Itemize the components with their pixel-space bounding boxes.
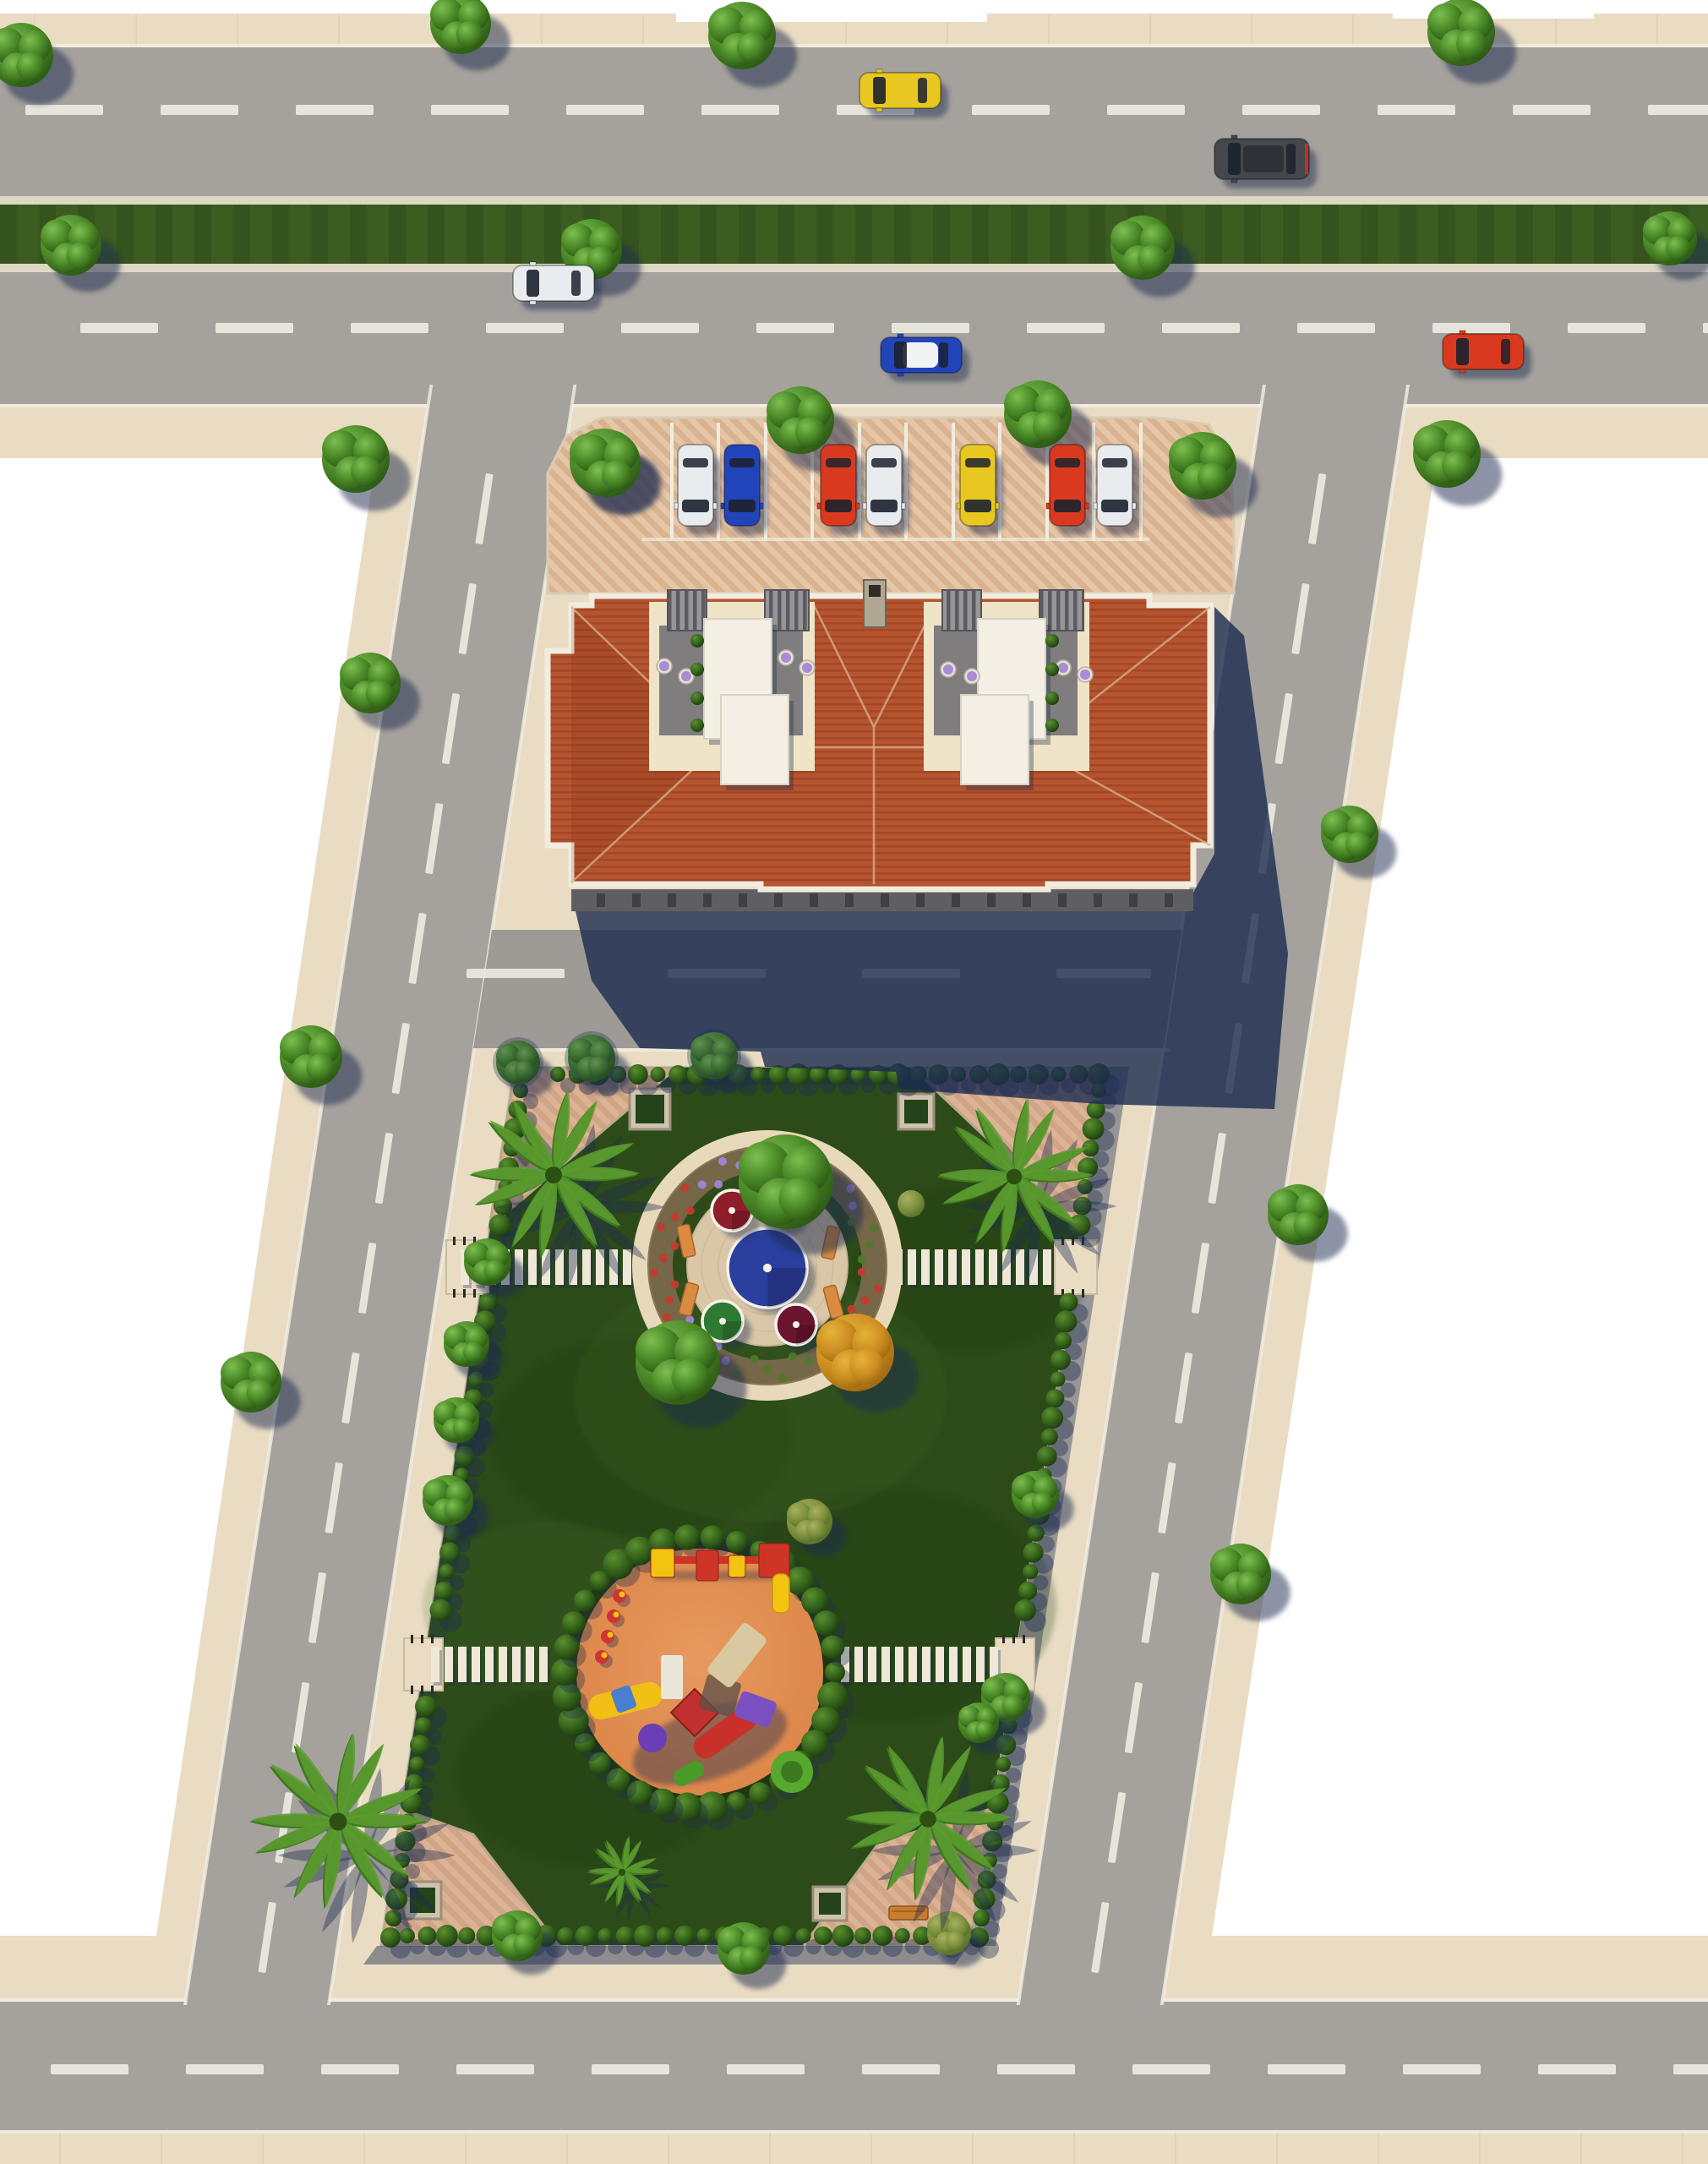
stepping-stone [908, 1249, 916, 1285]
sidewalk-joint [1682, 2130, 1683, 2164]
tree-canopy [602, 460, 632, 490]
fence-post [1002, 1635, 1005, 1643]
terrace-bush [1045, 663, 1059, 676]
play-structure-part [638, 1724, 667, 1752]
sidewalk-joint [135, 14, 137, 49]
flower-cluster [670, 1280, 679, 1288]
car-body [821, 445, 856, 526]
parking-stall-line [642, 538, 1149, 541]
fence-post [431, 1686, 434, 1694]
lane-dash [1027, 323, 1105, 333]
yellow-car-parked [957, 445, 1003, 535]
hedge-bush [410, 1757, 425, 1772]
windshield [1228, 143, 1241, 175]
stepping-stone [623, 1249, 631, 1285]
hedge-bush [657, 1927, 674, 1944]
lane-dash [1648, 105, 1708, 115]
wall-window [739, 893, 747, 907]
wall-window [1165, 893, 1173, 907]
flower-cluster [665, 1296, 674, 1304]
flower-cluster [778, 1374, 787, 1382]
sidewalk-joint [1048, 14, 1050, 49]
lane-dash [351, 323, 428, 333]
hedge-bush [1041, 1429, 1058, 1445]
fence-post [473, 1289, 476, 1298]
windshield [873, 77, 886, 104]
flower-cluster [861, 1296, 870, 1304]
flower-cluster [650, 1269, 658, 1277]
lane-dash [862, 2064, 940, 2074]
side-mirror [1132, 503, 1136, 509]
purple-flowers [802, 663, 812, 673]
stepping-stone [976, 1647, 985, 1682]
site-plan-rendering [0, 0, 1708, 2164]
stepping-stone [528, 1249, 537, 1285]
stepping-stone [949, 1647, 958, 1682]
purple-flowers [681, 671, 691, 681]
fence-post [463, 1237, 466, 1245]
tree-canopy [739, 1946, 763, 1970]
stepping-stone [445, 1647, 453, 1682]
sidewalk-joint [1073, 2130, 1075, 2164]
stepping-stone [895, 1647, 903, 1682]
windshield [894, 342, 907, 369]
sidewalk-joint [59, 2130, 61, 2164]
lane-dash [892, 323, 969, 333]
purple-flowers [943, 664, 953, 675]
tree-canopy [1345, 832, 1372, 858]
terrace-bush [690, 719, 704, 732]
roof-terrace-wing [649, 590, 815, 790]
play-frame-unit [696, 1550, 718, 1581]
stepping-stone [485, 1647, 494, 1682]
hedge-bush [895, 1928, 910, 1943]
tree-canopy [1032, 1492, 1053, 1513]
lane-dash [1513, 105, 1591, 115]
flower-cluster [858, 1268, 866, 1276]
flower-cluster [659, 1254, 668, 1262]
flower-cluster [789, 1352, 797, 1361]
playground-hedge-bush [726, 1531, 748, 1553]
parking-stall-line [952, 423, 955, 541]
hedge-bush [1018, 1582, 1037, 1600]
car-body-group [817, 445, 859, 526]
sidewalk-joint [1555, 14, 1557, 49]
car-body-group [1046, 445, 1089, 526]
car-body [513, 265, 594, 301]
tree-canopy [946, 1932, 965, 1951]
terrace-bush [690, 634, 704, 648]
fence-post [421, 1686, 423, 1694]
side-mirror [817, 503, 821, 509]
wall-window [668, 893, 676, 907]
car-body-group [881, 334, 962, 376]
stepping-stone [458, 1647, 467, 1682]
flower-cluster [718, 1157, 727, 1166]
play-frame-unit [728, 1555, 745, 1577]
tree-canopy [16, 52, 45, 81]
wall-window [597, 893, 605, 907]
sidewalk-joint [338, 14, 340, 49]
playground-hedge-bush [749, 1782, 771, 1804]
play-frame-unit [759, 1544, 789, 1577]
hedge-bush [1060, 1293, 1078, 1312]
tree-canopy [247, 1380, 274, 1407]
lane-dash [1297, 323, 1375, 333]
aerial-site-plan [0, 0, 1708, 2164]
palm-crown [619, 1869, 625, 1876]
playground-hedge-bush [674, 1525, 700, 1550]
hedge-bush [872, 1926, 892, 1946]
roof-tower [961, 695, 1029, 784]
chimney-vent [869, 585, 881, 597]
hedge-bush [668, 1065, 687, 1084]
white-car-parked [1094, 445, 1140, 535]
playground-hedge-bush [701, 1526, 724, 1549]
tree-canopy [806, 1520, 827, 1540]
yellow-car-driving [859, 69, 948, 117]
tree-canopy [67, 243, 94, 270]
side-mirror [530, 301, 536, 304]
playground-hedge-bush [574, 1590, 596, 1612]
taillights [1305, 144, 1308, 174]
rear-window [1055, 458, 1080, 467]
tree-canopy [1442, 451, 1472, 481]
rear-window [1286, 144, 1296, 174]
flower-cluster [763, 1365, 772, 1374]
white-car-parked [863, 445, 909, 535]
flower-cluster [858, 1255, 866, 1264]
side-mirror [674, 503, 678, 509]
terrace-bush [1045, 634, 1059, 648]
wall-window [952, 893, 960, 907]
tree-canopy [484, 1260, 505, 1281]
side-mirror [713, 503, 717, 509]
terrace-bush [690, 691, 704, 705]
stepping-stone [539, 1647, 548, 1682]
lane-dash [1162, 323, 1240, 333]
sidewalk-joint [465, 2130, 467, 2164]
rear-window [871, 458, 897, 467]
car-body-group [721, 445, 763, 526]
suv-car-driving [1214, 135, 1317, 189]
sidewalk-joint [1251, 14, 1252, 49]
wall-window [774, 893, 783, 907]
flower-cluster [874, 1284, 882, 1292]
windshield [870, 500, 898, 512]
sidewalk-joint [870, 2130, 872, 2164]
hedge-bush [415, 1696, 437, 1718]
play-structure-part [781, 1761, 803, 1783]
palm-crown [1007, 1169, 1022, 1184]
olive-bush [898, 1190, 925, 1217]
car-body-group [1094, 445, 1136, 526]
pergola [668, 590, 707, 631]
stepping-stone [975, 1249, 984, 1285]
stepping-stone [472, 1647, 480, 1682]
windshield [964, 500, 991, 512]
rear-window [826, 458, 851, 467]
tree-canopy [351, 456, 381, 486]
playground-hedge-bush [562, 1611, 586, 1635]
hedge-bush [576, 1926, 596, 1946]
palm-crown [330, 1813, 347, 1831]
hedge-bush [1050, 1372, 1066, 1387]
sidewalk-joint [161, 2130, 162, 2164]
tree-canopy [849, 1349, 884, 1384]
wall-window [916, 893, 925, 907]
car-body-group [674, 445, 717, 526]
hedge-bush [489, 1214, 511, 1236]
planter-grass [904, 1100, 928, 1123]
windshield [527, 270, 539, 297]
wall-window [632, 893, 641, 907]
tree-canopy [1198, 462, 1228, 493]
lane-dash [161, 105, 238, 115]
sidewalk-joint [1479, 2130, 1481, 2164]
shade-overlay [687, 1029, 741, 1083]
lane-dash [621, 323, 699, 333]
tree-canopy [463, 1342, 483, 1363]
wall-window [703, 893, 712, 907]
tree-canopy [453, 1418, 473, 1439]
hedge-bush [1055, 1310, 1077, 1332]
hedge-bush [434, 1582, 453, 1600]
umbrella-pole [728, 1207, 735, 1214]
lane-dash [431, 105, 509, 115]
car-body [1443, 334, 1524, 369]
hedge-bush [415, 1718, 432, 1735]
tree-canopy [366, 680, 393, 708]
flower-cluster [870, 1224, 878, 1232]
hedge-bush [651, 1067, 666, 1082]
hedge-bush [696, 1928, 712, 1943]
stepping-stone [1016, 1249, 1024, 1285]
lane-dash [321, 2064, 399, 2074]
windshield [1054, 500, 1081, 512]
shade-overlay [493, 1037, 543, 1088]
playground-hedge-bush [813, 1610, 838, 1636]
pergola [942, 590, 981, 631]
red-car-driving [1443, 331, 1531, 379]
playground-hedge-bush [801, 1587, 828, 1615]
flower-cluster [686, 1206, 695, 1215]
car-body [1097, 445, 1132, 526]
spring-rider-seat [602, 1653, 608, 1659]
side-mirror [721, 503, 724, 509]
hedge-bush [769, 1065, 788, 1084]
side-mirror [957, 503, 960, 509]
fence-post [1082, 1289, 1084, 1298]
car-body-group [1214, 135, 1309, 183]
hedge-bush [628, 1064, 648, 1085]
hedge-bush [674, 1926, 695, 1946]
hedge-bush [380, 1927, 401, 1948]
grass-median [0, 205, 1708, 264]
umbrella-pole [719, 1318, 726, 1325]
stepping-stone [936, 1647, 944, 1682]
road-edge-line [0, 404, 1708, 407]
lane-dash [467, 969, 565, 978]
umbrella-pole [793, 1321, 799, 1328]
lane-dash [727, 2064, 805, 2074]
play-structure-part [661, 1655, 683, 1699]
side-mirror [996, 503, 999, 509]
lane-dash [1568, 323, 1645, 333]
terrace-bush [1045, 719, 1059, 732]
windshield [825, 500, 852, 512]
planter-grass [819, 1893, 841, 1915]
palm-crown [919, 1811, 936, 1828]
parking-stall-line [670, 423, 674, 541]
wall-window [1129, 893, 1138, 907]
tree-canopy [1294, 1212, 1321, 1239]
tree-canopy [306, 1054, 334, 1082]
tree-canopy [1033, 411, 1063, 441]
stepping-stone [989, 1249, 997, 1285]
side-mirror [1460, 369, 1465, 373]
windshield [1101, 500, 1128, 512]
rear-window [918, 78, 927, 103]
wall-window [987, 893, 996, 907]
flower-cluster [847, 1305, 855, 1314]
side-mirror [1094, 503, 1097, 509]
median-curb [0, 196, 1708, 205]
sidewalk-joint [541, 14, 543, 49]
wall-window [1094, 893, 1102, 907]
tree-canopy [672, 1359, 710, 1397]
stepping-stone [935, 1249, 943, 1285]
side-mirror [876, 69, 882, 73]
side-mirror [1231, 179, 1237, 183]
wall-window [1023, 893, 1031, 907]
hedge-bush [436, 1925, 458, 1947]
sidewalk-notch [1393, 0, 1594, 19]
suv-roof [1243, 145, 1284, 172]
tree-canopy [1456, 29, 1487, 59]
hedge-bush [832, 1925, 854, 1947]
stepping-stone [499, 1647, 507, 1682]
car-body [859, 73, 941, 108]
side-mirror [863, 503, 866, 509]
blue-car-driving [881, 334, 969, 382]
side-mirror [856, 503, 859, 509]
lane-dash [456, 2064, 534, 2074]
road-edge-line [0, 2130, 1708, 2134]
hedge-bush [996, 1757, 1011, 1772]
hedge-bush [616, 1926, 635, 1945]
stepping-stone [854, 1647, 863, 1682]
sidewalk-joint [1276, 2130, 1278, 2164]
flower-cluster [698, 1180, 707, 1189]
blue-car-parked [721, 445, 767, 535]
flower-cluster [750, 1355, 758, 1363]
stepping-stone [526, 1647, 534, 1682]
palm-crown [545, 1167, 562, 1183]
car-body [678, 445, 713, 526]
hedge-bush [1023, 1543, 1044, 1563]
lane-dash [1673, 2064, 1708, 2074]
lane-dash [1378, 105, 1455, 115]
tree-canopy [975, 1721, 994, 1740]
hedge-bush [634, 1925, 656, 1947]
sidewalk-joint [363, 2130, 365, 2164]
lane-dash [701, 105, 779, 115]
tree-canopy [1138, 245, 1166, 274]
fence-post [453, 1237, 456, 1245]
stepping-stone [431, 1647, 439, 1682]
sidewalk-joint [566, 2130, 568, 2164]
umbrella-pole [763, 1264, 772, 1272]
lane-dash [756, 323, 834, 333]
side-mirror [1085, 503, 1089, 509]
spring-rider-seat [614, 1612, 619, 1618]
purple-flowers [1058, 663, 1068, 673]
red-car-parked [1046, 445, 1093, 535]
fence-post [1023, 1635, 1025, 1643]
lane-dash [1703, 323, 1708, 333]
lane-dash [1132, 2064, 1210, 2074]
sidewalk-joint [1580, 2130, 1582, 2164]
planter-grass [636, 1095, 664, 1123]
car-body [724, 445, 760, 526]
play-frame-unit [651, 1549, 674, 1577]
hedge-bush [1083, 1118, 1105, 1140]
side-mirror [902, 503, 905, 509]
hedge-bush [439, 1564, 455, 1579]
tree-canopy [795, 417, 826, 447]
hedge-bush [814, 1926, 832, 1945]
car-body-group [859, 69, 941, 112]
purple-flowers [1080, 669, 1090, 680]
sidewalk-joint [642, 14, 644, 49]
hedge-bush [557, 1927, 574, 1944]
stepping-stone [963, 1647, 971, 1682]
hedge-bush [1037, 1446, 1057, 1467]
flower-cluster [671, 1213, 679, 1221]
rear-window [939, 342, 948, 368]
lane-dash [186, 2064, 264, 2074]
car-body [960, 445, 996, 526]
lane-dash [997, 2064, 1075, 2074]
flower-cluster [680, 1183, 689, 1192]
sidewalk-joint [668, 2130, 669, 2164]
lane-dash [1538, 2064, 1616, 2074]
hedge-bush [439, 1543, 460, 1563]
hedge-bush [1045, 1389, 1064, 1407]
windshield [728, 500, 756, 512]
stepping-stone [582, 1249, 591, 1285]
lane-dash [1242, 105, 1320, 115]
median-curb [0, 264, 1708, 272]
terrace-bush [1045, 691, 1059, 705]
hedge-bush [796, 1928, 811, 1943]
roof-tower [721, 695, 789, 784]
sidewalk-joint [1175, 2130, 1176, 2164]
stepping-stone [922, 1647, 930, 1682]
hedge-bush [1050, 1350, 1071, 1370]
side-mirror [1046, 503, 1050, 509]
fence-post [411, 1686, 413, 1694]
tree-canopy [1236, 1571, 1263, 1598]
hedge-bush [410, 1735, 430, 1755]
flower-cluster [805, 1357, 813, 1365]
rear-window [571, 270, 581, 296]
lane-dash [25, 105, 103, 115]
fence-post [421, 1635, 423, 1643]
flower-cluster [865, 1241, 874, 1249]
stepping-stone [1043, 1249, 1051, 1285]
